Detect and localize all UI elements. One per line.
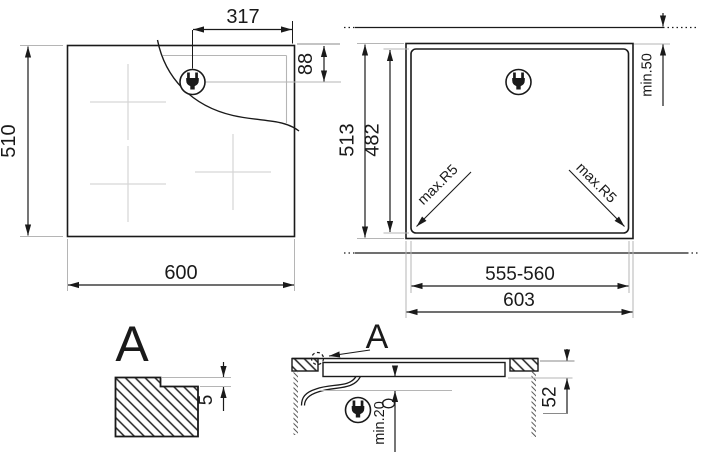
worktop-edge-section xyxy=(116,378,199,437)
dim-label-clearance-below: min.20 xyxy=(372,401,388,445)
cabinet-side-left xyxy=(294,371,299,435)
hob-top-view: 317 88 510 600 xyxy=(0,6,341,291)
hob-outline xyxy=(68,46,295,237)
dimension-hob-depth: 510 xyxy=(0,46,63,237)
dimension-cutout-width: 555-560 xyxy=(411,241,629,293)
installation-drawing: 317 88 510 600 xyxy=(0,0,701,461)
dimension-hob-width: 600 xyxy=(68,239,295,291)
cabinet-side-right xyxy=(532,371,537,437)
dim-label-hob-depth: 510 xyxy=(0,124,20,157)
dim-label-plug-offset-x: 317 xyxy=(226,6,259,28)
section-view: A min.20 52 xyxy=(292,318,575,452)
dim-label-recess-depth: 5 xyxy=(196,395,217,406)
dimension-plug-offset-y: 88 xyxy=(295,44,340,82)
worktop-block-right xyxy=(510,359,538,372)
dim-label-build-in-depth: 52 xyxy=(540,386,561,407)
detail-leader-line xyxy=(329,350,370,356)
dim-label-overall-height: 513 xyxy=(337,123,359,156)
dimension-clearance-below: min.20 xyxy=(320,367,452,453)
dim-label-cutout-width: 555-560 xyxy=(485,264,555,285)
power-plug-icon xyxy=(506,70,531,95)
dim-label-rear-clearance: min.50 xyxy=(640,53,656,97)
worktop-block-left xyxy=(292,359,318,372)
power-plug-icon xyxy=(180,70,205,95)
dim-label-hob-width: 600 xyxy=(164,262,197,284)
dim-label-cutout-height: 482 xyxy=(362,123,384,156)
dim-label-overall-width: 603 xyxy=(503,290,535,311)
hob-body-section xyxy=(323,363,505,377)
detail-a-label: A xyxy=(115,316,149,372)
drawing-svg: 317 88 510 600 xyxy=(0,0,701,461)
worktop-cutout-view: min.50 513 482 max.R5 max.R5 xyxy=(337,13,700,318)
power-plug-icon xyxy=(346,398,371,423)
dim-label-plug-offset-y: 88 xyxy=(295,53,317,75)
detail-a-view: A 5 xyxy=(115,316,231,437)
dimension-cutout-height: 482 xyxy=(362,49,410,233)
